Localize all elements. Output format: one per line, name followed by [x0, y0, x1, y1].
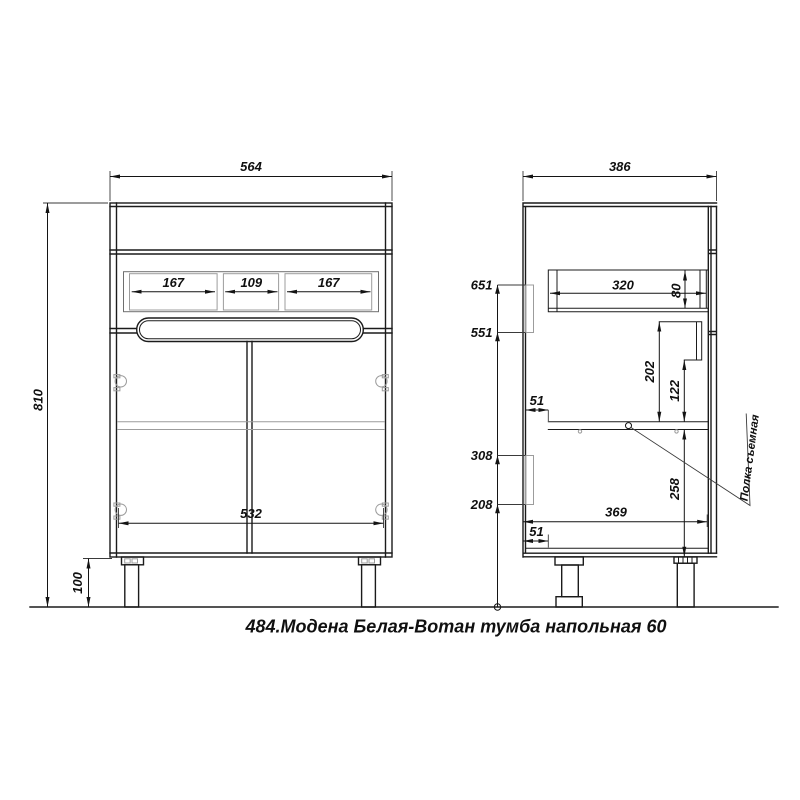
dim-label-51-bottom: 51 — [529, 524, 543, 539]
dim-label-167-left: 167 — [162, 275, 184, 290]
shelf-leader-point — [626, 423, 632, 429]
dim-interior-depth: 369 — [523, 505, 707, 528]
side-runner-bracket — [659, 322, 701, 360]
dim-shelf-front-gap: 51 — [526, 393, 549, 421]
dim-overall-depth: 386 — [523, 159, 717, 201]
dim-overall-width: 564 — [110, 159, 392, 201]
dim-label-551: 551 — [471, 325, 493, 340]
drawing-title: 484.Модена Белая-Вотан тумба напольная 6… — [244, 617, 666, 637]
dim-label-810: 810 — [31, 388, 46, 410]
dim-label-202: 202 — [642, 360, 657, 383]
shelf-pin-right — [675, 430, 678, 433]
side-rail-top — [526, 285, 534, 333]
dim-label-320: 320 — [612, 278, 634, 293]
shelf-pin-left — [578, 430, 581, 433]
door-gap — [247, 342, 252, 554]
hinge-icons — [114, 375, 388, 520]
dim-interior-width: 532 — [119, 506, 384, 528]
dim-label-308: 308 — [471, 448, 493, 463]
front-dimensions: 564 810 100 532 167 109 167 — [31, 159, 393, 607]
side-legs — [555, 557, 697, 607]
side-dimensions: 386 651 551 308 208 320 80 202 122 — [470, 159, 762, 610]
side-front-strip — [708, 207, 716, 554]
dim-label-532: 532 — [240, 506, 262, 521]
front-shelf-lines — [117, 422, 385, 430]
front-view-cabinet — [110, 203, 392, 607]
dim-label-386: 386 — [609, 159, 631, 174]
dim-overall-height: 810 — [31, 203, 109, 607]
shelf-note: Полка съемная — [631, 414, 762, 506]
dim-shelf-to-bottom: 258 — [667, 430, 685, 557]
front-cabinet-outline — [110, 203, 392, 557]
dim-label-122: 122 — [667, 379, 682, 401]
handle-recess-outer — [137, 318, 364, 342]
dim-label-258: 258 — [667, 477, 682, 500]
dim-runner-202: 202 — [642, 322, 660, 422]
handle-recess-inner — [140, 321, 361, 339]
dim-rail-heights: 651 551 308 208 — [470, 278, 526, 611]
dim-label-564: 564 — [240, 159, 262, 174]
dim-label-100: 100 — [70, 571, 85, 593]
dim-label-51-shelf: 51 — [530, 393, 544, 408]
technical-drawing: 564 810 100 532 167 109 167 — [0, 0, 800, 800]
dim-label-208: 208 — [470, 497, 493, 512]
dim-label-651: 651 — [471, 278, 493, 293]
dim-label-109: 109 — [240, 275, 262, 290]
dim-drawer-height: 80 — [669, 271, 686, 309]
front-legs — [122, 557, 381, 607]
dim-label-80: 80 — [669, 283, 684, 298]
dim-bottom-front-gap: 51 — [523, 524, 548, 548]
dim-runner-122: 122 — [667, 360, 685, 422]
dim-leg-height: 100 — [70, 559, 112, 608]
front-door-top-lines — [110, 329, 392, 334]
front-panel-lines — [110, 203, 392, 557]
side-rail-bottom — [526, 456, 534, 505]
dim-label-369: 369 — [605, 505, 627, 520]
shelf-note-label: Полка съемная — [739, 414, 762, 502]
dim-compartments: 167 109 167 — [132, 275, 371, 292]
dim-label-167-right: 167 — [318, 275, 340, 290]
side-view-cabinet — [523, 203, 717, 607]
